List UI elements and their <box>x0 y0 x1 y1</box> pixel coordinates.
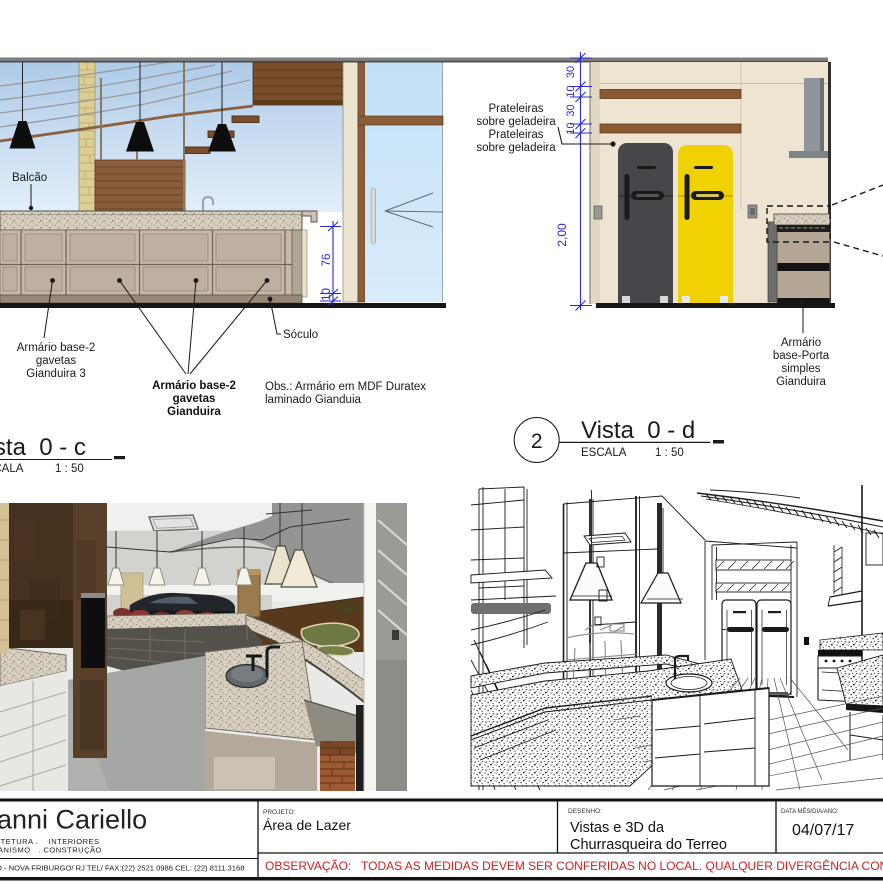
svg-text:DESENHO:: DESENHO: <box>568 808 602 815</box>
svg-text:Gianduira: Gianduira <box>167 406 221 418</box>
svg-text:sobre geladeira: sobre geladeira <box>476 116 556 128</box>
svg-text:Gianduira 3: Gianduira 3 <box>26 368 85 380</box>
svg-text:10: 10 <box>321 288 333 301</box>
svg-text:2,00: 2,00 <box>555 223 569 247</box>
svg-text:base-Porta: base-Porta <box>773 350 830 362</box>
svg-text:laminado Gianduia: laminado Gianduia <box>265 394 362 406</box>
svg-text:Sóculo: Sóculo <box>283 329 318 341</box>
svg-text:1 : 50: 1 : 50 <box>655 447 684 459</box>
svg-text:Vista 0 - d: Vista 0 - d <box>581 417 695 444</box>
svg-text:Vista 0 - c: Vista 0 - c <box>0 434 86 461</box>
svg-text:Vistas e 3D da: Vistas e 3D da <box>570 820 665 836</box>
svg-text:2: 2 <box>531 430 543 453</box>
svg-text:PROJETO:: PROJETO: <box>263 809 296 816</box>
svg-text:gavetas: gavetas <box>36 355 77 367</box>
svg-text:Armário base-2: Armário base-2 <box>17 342 96 354</box>
svg-text:ESCALA: ESCALA <box>0 463 24 475</box>
svg-text:Armário base-2: Armário base-2 <box>152 380 236 392</box>
svg-text:10: 10 <box>565 122 577 134</box>
svg-text:simples: simples <box>782 363 821 375</box>
svg-text:ESCALA: ESCALA <box>581 447 627 459</box>
svg-text:30: 30 <box>565 66 577 78</box>
svg-text:Prateleiras: Prateleiras <box>489 129 544 141</box>
svg-text:sobre geladeira: sobre geladeira <box>476 142 556 154</box>
svg-text:ANISMO . CONSTRUÇÃO: ANISMO . CONSTRUÇÃO <box>0 846 102 855</box>
svg-text:04/07/17: 04/07/17 <box>792 822 854 839</box>
svg-text:Prateleiras: Prateleiras <box>489 103 544 115</box>
svg-text:anni Cariello: anni Cariello <box>0 805 147 835</box>
svg-text:Armário: Armário <box>781 337 821 349</box>
svg-text:Balcão: Balcão <box>12 172 47 184</box>
svg-text:OBSERVAÇÃO:: OBSERVAÇÃO: <box>265 859 351 873</box>
svg-text:Obs.: Armário em MDF Duratex: Obs.: Armário em MDF Duratex <box>265 381 426 393</box>
svg-text:gavetas: gavetas <box>173 393 216 405</box>
svg-text:DATA MÊS/DIA/ANO:: DATA MÊS/DIA/ANO: <box>781 807 839 815</box>
svg-text:Churrasqueira do Terreo: Churrasqueira do Terreo <box>570 837 727 853</box>
svg-text:30: 30 <box>565 104 577 116</box>
svg-text:Gianduira: Gianduira <box>776 376 826 388</box>
svg-text:Área de Lazer: Área de Lazer <box>263 817 351 833</box>
svg-text:76: 76 <box>321 254 333 267</box>
svg-text:1 : 50: 1 : 50 <box>55 463 84 475</box>
svg-text:TODAS AS MEDIDAS DEVEM SER CON: TODAS AS MEDIDAS DEVEM SER CONFERIDAS NO… <box>361 858 883 873</box>
svg-text:10: 10 <box>565 85 577 97</box>
svg-text:O - NOVA FRIBURGO/ RJ TEL/ FAX: O - NOVA FRIBURGO/ RJ TEL/ FAX:(22) 2521… <box>0 864 244 873</box>
